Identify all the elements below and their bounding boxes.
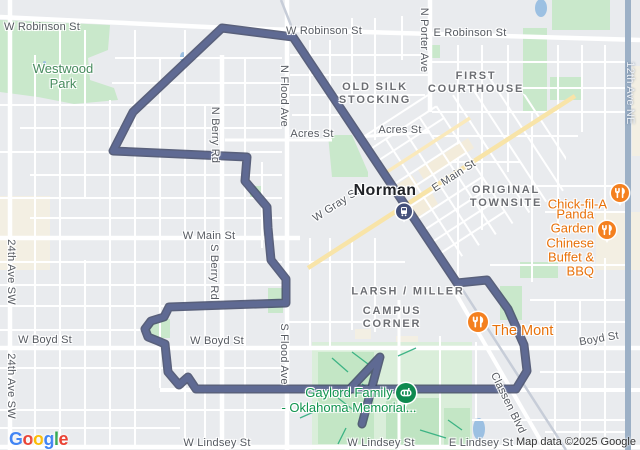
stadium-icon [393, 381, 419, 411]
google-logo[interactable]: Google [9, 429, 68, 450]
logo-letter: o [33, 429, 44, 449]
map-canvas[interactable]: W Robinson St W Robinson St E Robinson S… [0, 0, 640, 450]
logo-letter: e [59, 429, 69, 449]
logo-letter: g [44, 429, 55, 449]
restaurant-pin-chick-fil-a[interactable] [608, 182, 632, 215]
logo-letter: o [23, 429, 34, 449]
fork-knife-icon [595, 219, 619, 247]
restaurant-pin-panda-garden[interactable] [595, 219, 619, 252]
transit-station-badge[interactable] [393, 201, 415, 230]
map-graphics [0, 0, 640, 450]
logo-letter: G [9, 429, 23, 449]
restaurant-pin-the-mont[interactable] [465, 310, 491, 345]
fork-knife-icon [465, 310, 491, 340]
map-attribution: Map data ©2025 Google [516, 436, 636, 448]
stadium-pin-gaylord-memorial[interactable] [393, 381, 419, 416]
train-icon [393, 201, 415, 225]
fork-knife-icon [608, 182, 632, 210]
